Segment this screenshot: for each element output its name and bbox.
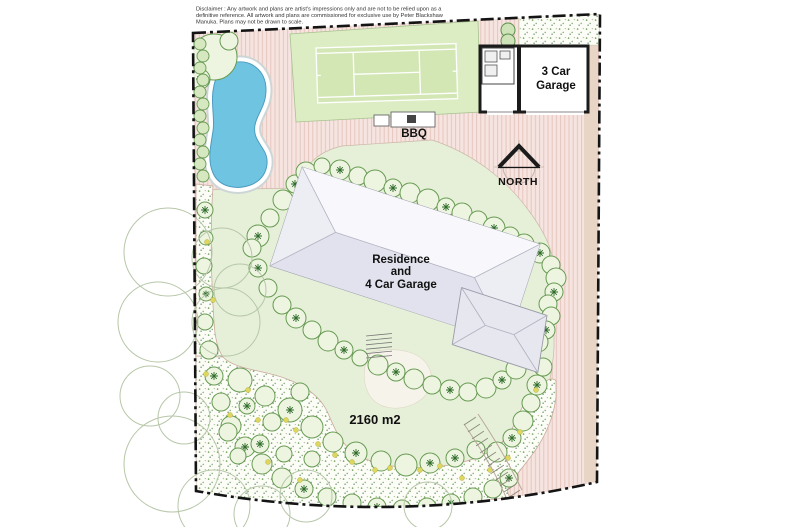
garage-label-line2: Garage — [536, 80, 576, 92]
area-label: 2160 m2 — [349, 412, 400, 427]
residence-label-line1: Residence — [372, 254, 430, 266]
north-label: NORTH — [498, 176, 538, 188]
site-plan-page: Disclaimer : Any artwork and plans are a… — [0, 0, 790, 527]
tennis-court — [290, 21, 481, 122]
disclaimer-line2: definitive reference. All artwork and pl… — [196, 13, 444, 19]
bbq-label: BBQ — [401, 128, 427, 140]
site-plan-canvas: Disclaimer : Any artwork and plans are a… — [0, 0, 790, 527]
disclaimer-line3: Manuka. Plans may not be drawn to scale. — [196, 20, 304, 26]
residence-label-line2: and — [391, 266, 411, 278]
residence-label-line3: 4 Car Garage — [365, 279, 437, 291]
disclaimer-line1: Disclaimer : Any artwork and plans are a… — [196, 7, 442, 13]
garage-label-line1: 3 Car — [542, 66, 571, 78]
swimming-pool — [210, 62, 267, 188]
